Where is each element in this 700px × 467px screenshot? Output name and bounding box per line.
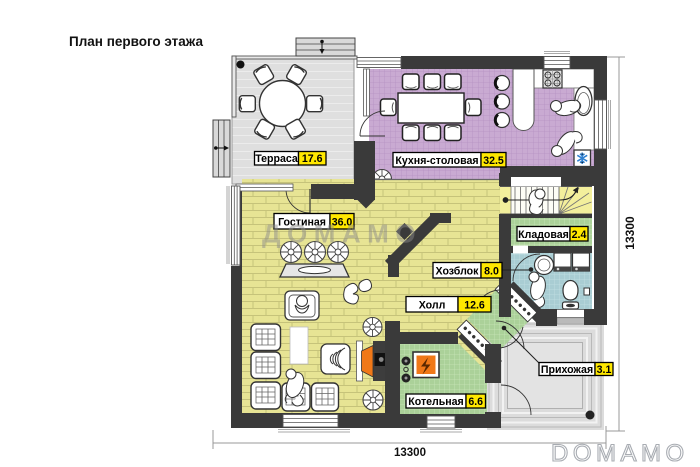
svg-text:3.1: 3.1: [597, 364, 612, 376]
svg-text:13300: 13300: [623, 216, 637, 250]
svg-text:Холл: Холл: [419, 300, 446, 312]
svg-text:32.5: 32.5: [483, 155, 504, 167]
svg-text:6.6: 6.6: [468, 396, 483, 408]
svg-text:Кладовая: Кладовая: [518, 229, 569, 241]
svg-text:План первого этажа: План первого этажа: [69, 34, 204, 49]
svg-text:2.4: 2.4: [572, 229, 587, 241]
svg-text:Прихожая: Прихожая: [541, 364, 593, 376]
svg-text:Котельная: Котельная: [408, 396, 463, 408]
svg-text:ДОМАМО: ДОМАМО: [262, 219, 422, 249]
svg-text:17.6: 17.6: [302, 153, 323, 165]
svg-text:Кухня-столовая: Кухня-столовая: [395, 155, 478, 167]
svg-text:12.6: 12.6: [464, 300, 485, 312]
svg-text:13300: 13300: [394, 447, 426, 459]
svg-text:8.0: 8.0: [484, 266, 499, 278]
svg-text:DOMAMO: DOMAMO: [551, 440, 689, 467]
svg-text:Хозблок: Хозблок: [436, 266, 480, 278]
svg-text:Терраса: Терраса: [255, 153, 298, 165]
